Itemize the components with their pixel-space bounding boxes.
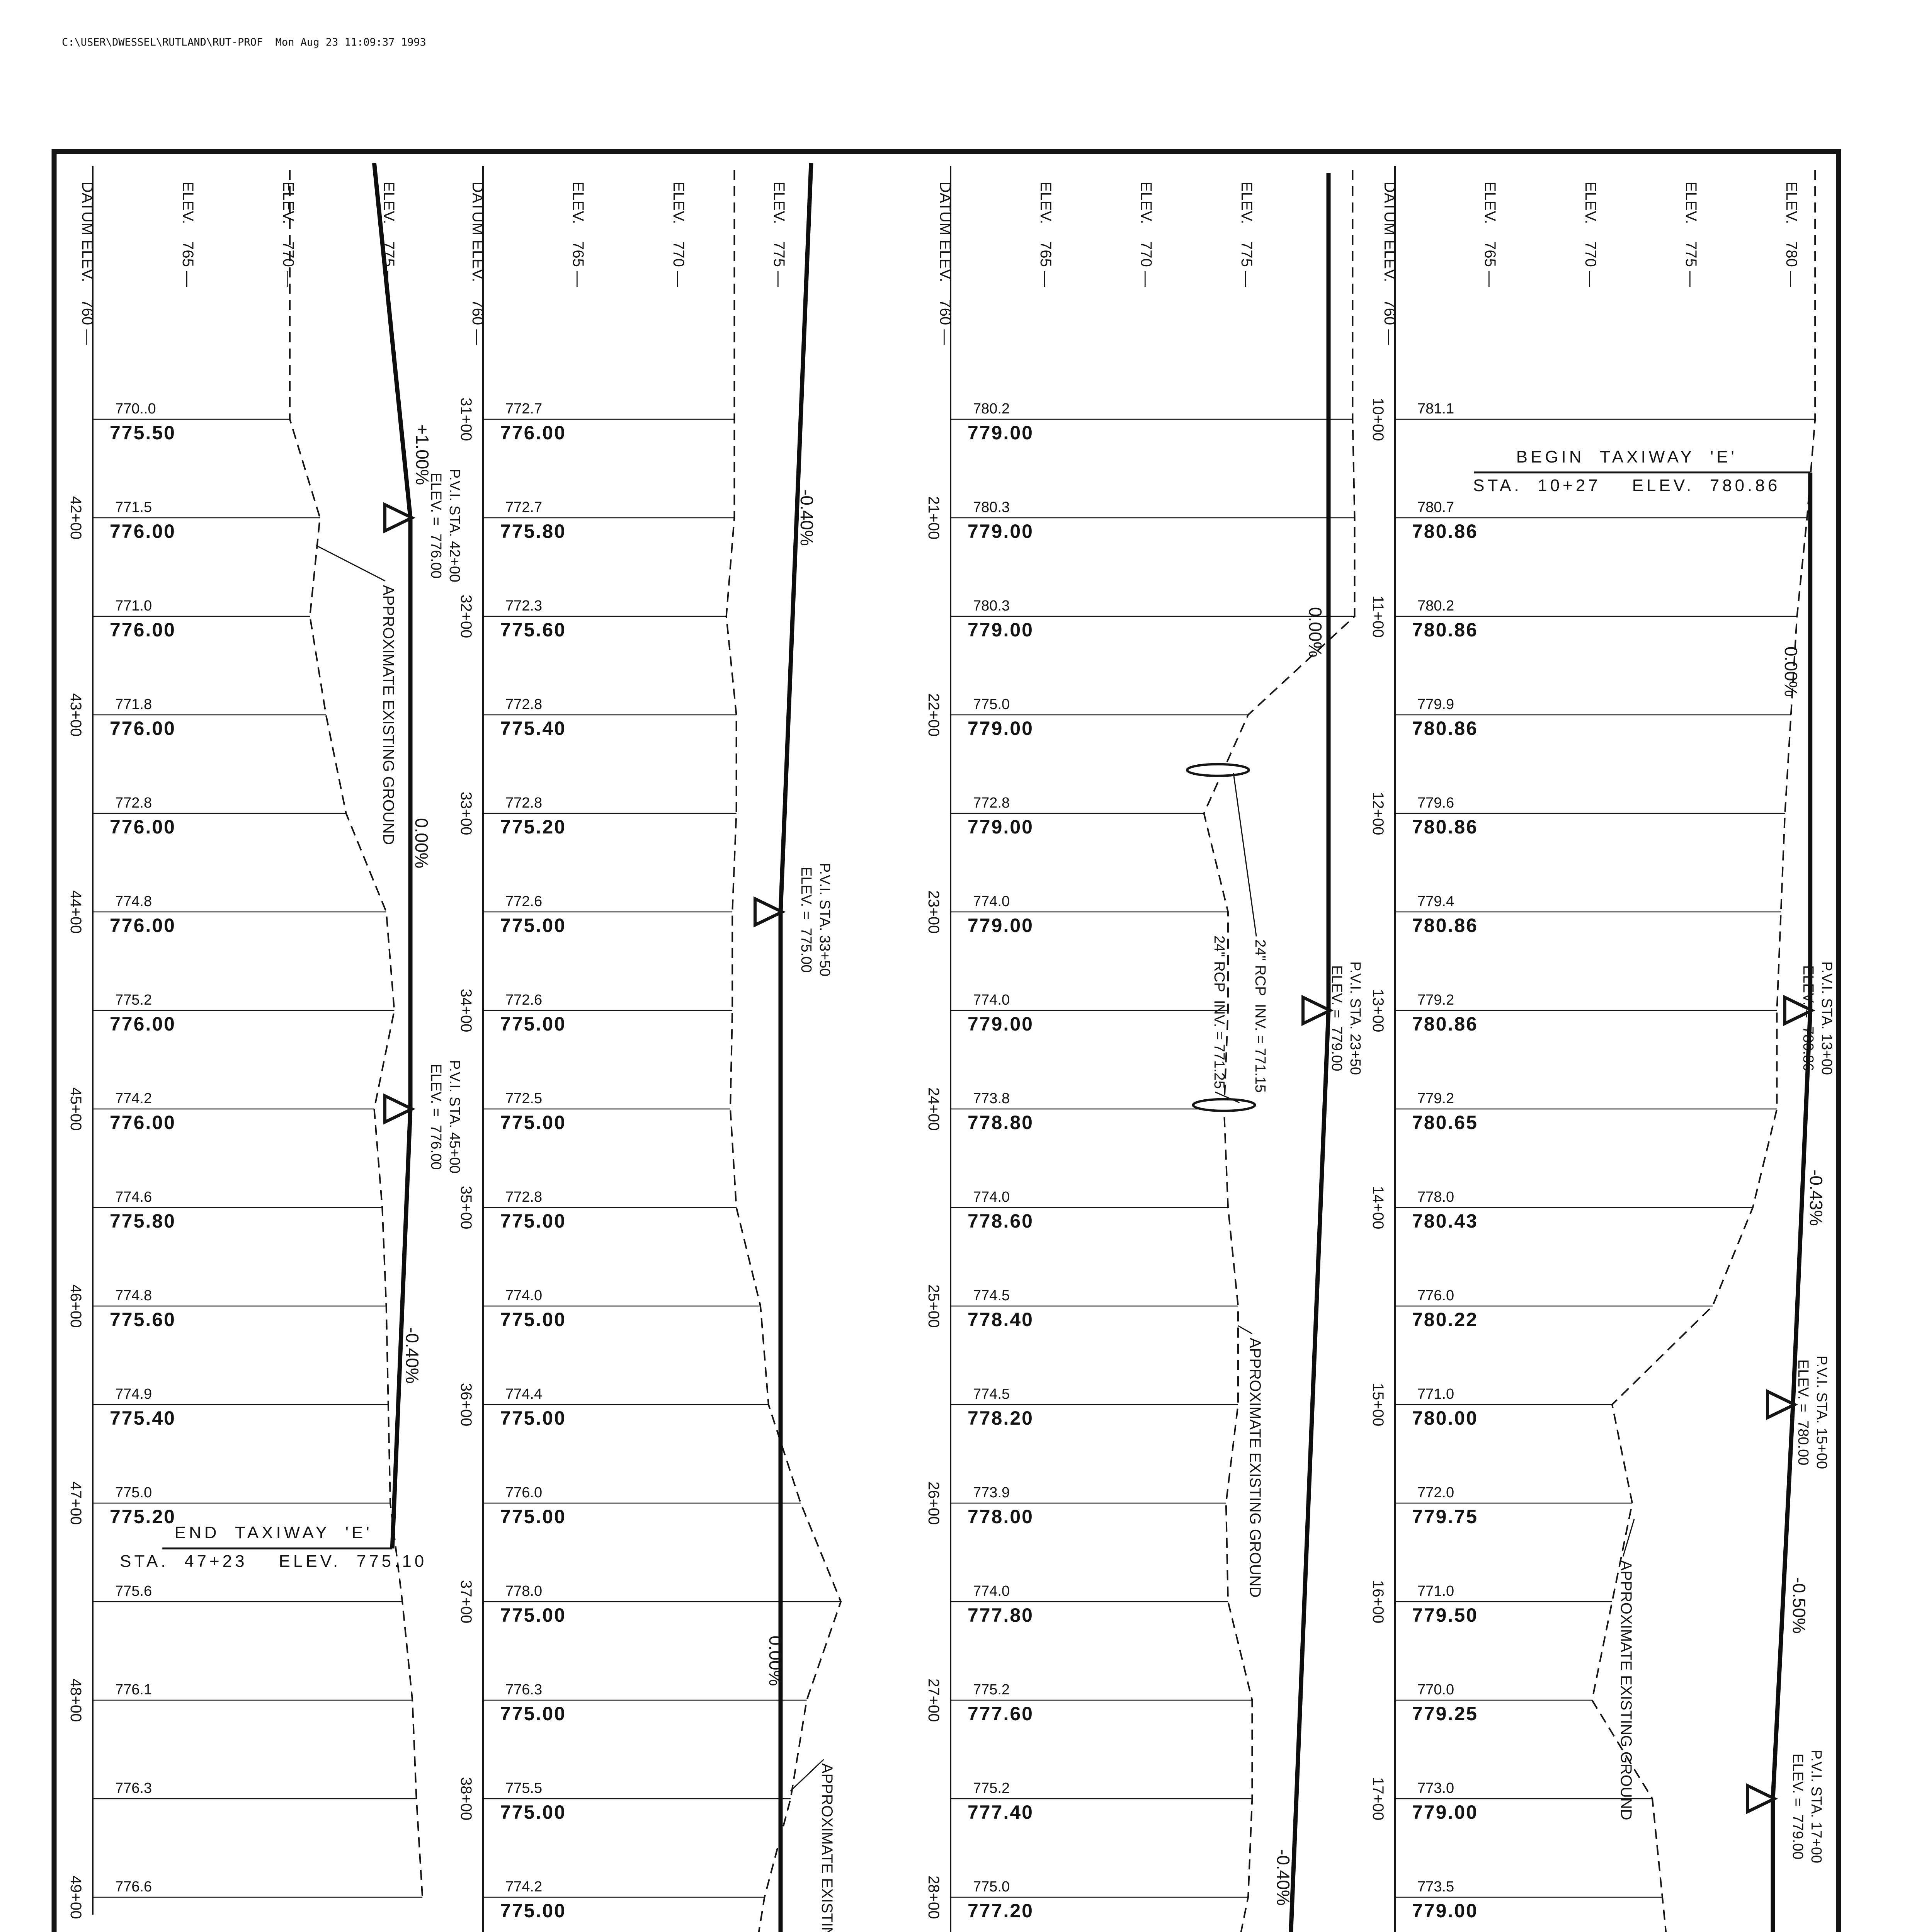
- title-block: SHEET 16 OF 17 DRAWING NO. PR1 RUTLAND S…: [0, 0, 1912, 1932]
- profile-drawing-sheet: { "page": { "file_note": "C:\\USER\\DWES…: [0, 0, 1912, 1932]
